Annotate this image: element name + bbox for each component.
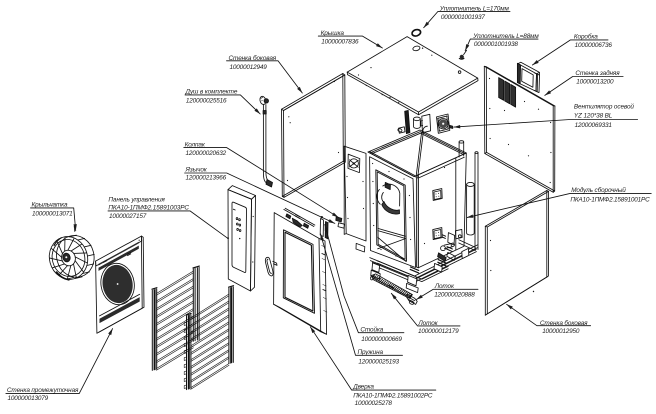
svg-text:Панель управления: Панель управления xyxy=(108,196,165,203)
svg-text:120000213966: 120000213966 xyxy=(186,175,227,182)
svg-text:10000012950: 10000012950 xyxy=(542,328,580,335)
svg-text:ПКА10-1ПМФ2.15891003РС: ПКА10-1ПМФ2.15891003РС xyxy=(108,204,189,211)
svg-text:ПКА10-1ПМФ2.15891001РС: ПКА10-1ПМФ2.15891001РС xyxy=(570,196,650,203)
svg-text:120000020632: 120000020632 xyxy=(186,150,227,157)
svg-text:Язычок: Язычок xyxy=(185,167,208,174)
svg-text:Стенка промежуточная: Стенка промежуточная xyxy=(7,387,79,394)
svg-text:0000001001938: 0000001001938 xyxy=(474,41,518,48)
svg-text:120000020888: 120000020888 xyxy=(434,291,475,298)
svg-text:ПКА10-1ПМФ2.15891002РС: ПКА10-1ПМФ2.15891002РС xyxy=(353,392,433,399)
svg-text:Лоток: Лоток xyxy=(434,283,455,290)
svg-text:Стенка задняя: Стенка задняя xyxy=(575,69,620,77)
svg-text:YZ 120*38 BL: YZ 120*38 BL xyxy=(574,112,613,119)
svg-text:0000001001937: 0000001001937 xyxy=(441,14,485,21)
svg-text:12000069331: 12000069331 xyxy=(575,122,613,129)
svg-text:100000013079: 100000013079 xyxy=(8,395,49,402)
svg-text:100000000669: 100000000669 xyxy=(361,336,402,343)
svg-text:10000012949: 10000012949 xyxy=(230,64,268,71)
svg-text:Вентилятор осевой: Вентилятор осевой xyxy=(574,103,634,111)
svg-text:10000027157: 10000027157 xyxy=(109,213,147,220)
svg-text:120000025516: 120000025516 xyxy=(186,98,227,105)
svg-text:120000025193: 120000025193 xyxy=(358,358,399,365)
svg-text:Пружина: Пружина xyxy=(358,349,384,356)
svg-text:100000013071: 100000013071 xyxy=(32,210,73,217)
svg-text:Дверка: Дверка xyxy=(352,384,374,391)
svg-text:10000007836: 10000007836 xyxy=(321,38,359,45)
svg-text:100000012179: 100000012179 xyxy=(418,328,459,335)
svg-text:10000013200: 10000013200 xyxy=(576,78,614,85)
svg-text:10000006736: 10000006736 xyxy=(575,42,613,49)
svg-text:10000025278: 10000025278 xyxy=(355,400,393,407)
svg-text:Модуль сборочный: Модуль сборочный xyxy=(571,186,626,194)
